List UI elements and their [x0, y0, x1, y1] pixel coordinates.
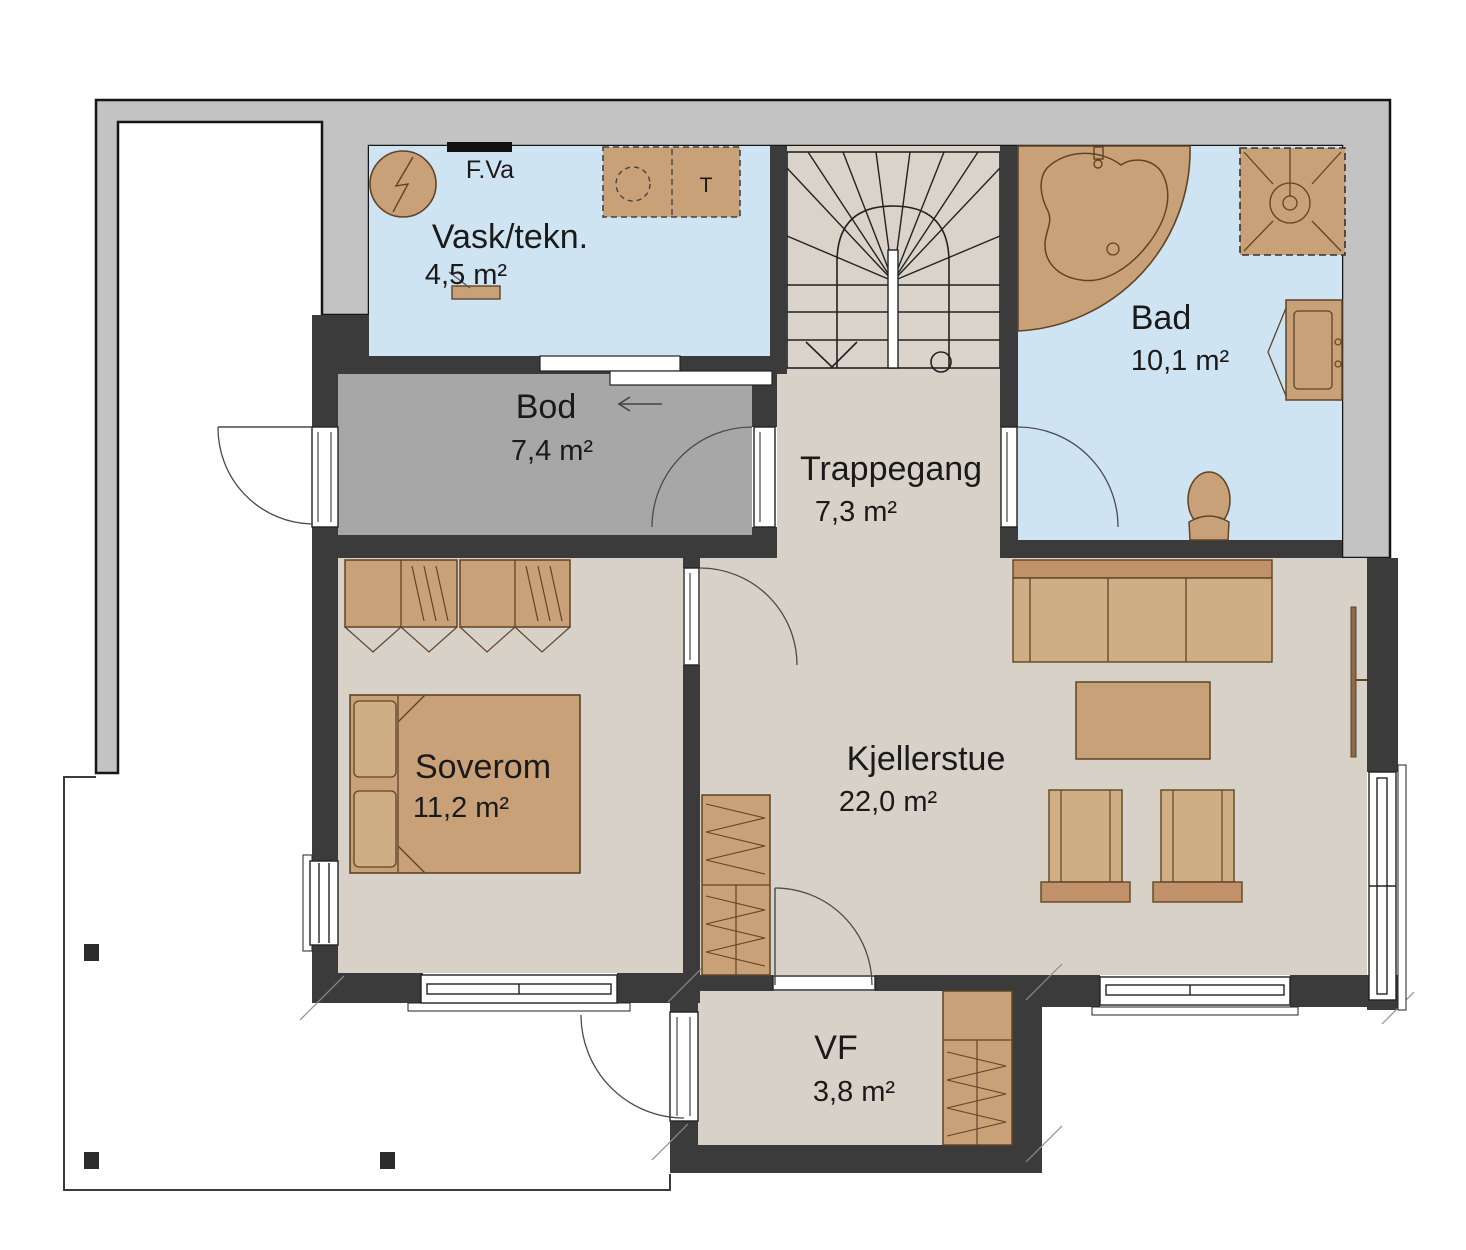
room-area-trappegang: 7,3 m²: [815, 496, 898, 528]
soverom-bottom-window: [408, 975, 630, 1011]
tall-cabinet: [702, 795, 770, 975]
floor-plan-page: Vask/tekn. 4,5 m² Bod 7,4 m² Trappegang …: [0, 0, 1466, 1250]
wall: [1000, 146, 1018, 427]
wall: [1367, 558, 1398, 772]
wall: [683, 558, 700, 568]
terrace-post: [84, 1152, 99, 1169]
dryer-annotation: T: [700, 174, 713, 197]
wall: [770, 146, 787, 374]
wall-vent: [447, 142, 512, 152]
pillow: [354, 791, 396, 867]
wall: [875, 975, 1012, 991]
water-heater: [370, 151, 436, 217]
wall: [670, 1145, 1042, 1173]
vf-entry-door: [581, 1012, 698, 1121]
room-area-kjellerstue: 22,0 m²: [839, 786, 938, 818]
room-label-soverom: Soverom: [415, 748, 551, 786]
toilet: [1188, 472, 1230, 540]
water-heater-annotation: F.Va: [466, 156, 514, 184]
room-area-bad: 10,1 m²: [1131, 345, 1230, 377]
shower: [1240, 148, 1345, 255]
soverom-left-window: [303, 855, 338, 951]
room-label-bad: Bad: [1131, 299, 1192, 337]
room-label-kjellerstue: Kjellerstue: [847, 740, 1006, 778]
room-area-vask-tekn: 4,5 m²: [425, 259, 508, 291]
bod-exterior-door: [218, 427, 338, 527]
soverom-furniture: [345, 560, 580, 873]
wall: [1012, 975, 1042, 1145]
room-label-bod: Bod: [516, 388, 577, 426]
room-label-vask-tekn: Vask/tekn.: [432, 218, 588, 256]
pillow: [354, 701, 396, 777]
wall: [312, 973, 423, 1003]
wall: [698, 975, 773, 991]
room-area-soverom: 11,2 m²: [413, 792, 510, 824]
wall: [312, 315, 338, 427]
armchair: [1153, 790, 1242, 902]
terrace-post: [380, 1152, 395, 1169]
sofa: [1013, 560, 1272, 662]
wall: [670, 975, 698, 1012]
staircase: [787, 152, 1000, 372]
vf-wardrobe: [943, 991, 1012, 1145]
terrace-post: [84, 944, 99, 961]
kjellerstue-bottom-window: [1092, 977, 1298, 1015]
kjellerstue-right-window: [1369, 765, 1406, 1010]
wall: [1367, 1000, 1398, 1010]
wall: [683, 665, 700, 1003]
wall: [1042, 975, 1100, 1007]
room-area-vf: 3,8 m²: [813, 1076, 896, 1108]
wall: [312, 535, 777, 558]
stair-center-divider: [888, 250, 898, 368]
coffee-table: [1076, 682, 1210, 759]
wall: [670, 1121, 698, 1145]
wall: [312, 527, 338, 861]
wall: [1000, 540, 1342, 558]
armchair: [1041, 790, 1130, 902]
washer-dryer: [603, 147, 740, 217]
room-label-vf: VF: [814, 1029, 857, 1067]
floor-plan-drawing: Vask/tekn. 4,5 m² Bod 7,4 m² Trappegang …: [0, 0, 1466, 1250]
room-area-bod: 7,4 m²: [511, 435, 594, 467]
room-label-trappegang: Trappegang: [800, 450, 982, 488]
